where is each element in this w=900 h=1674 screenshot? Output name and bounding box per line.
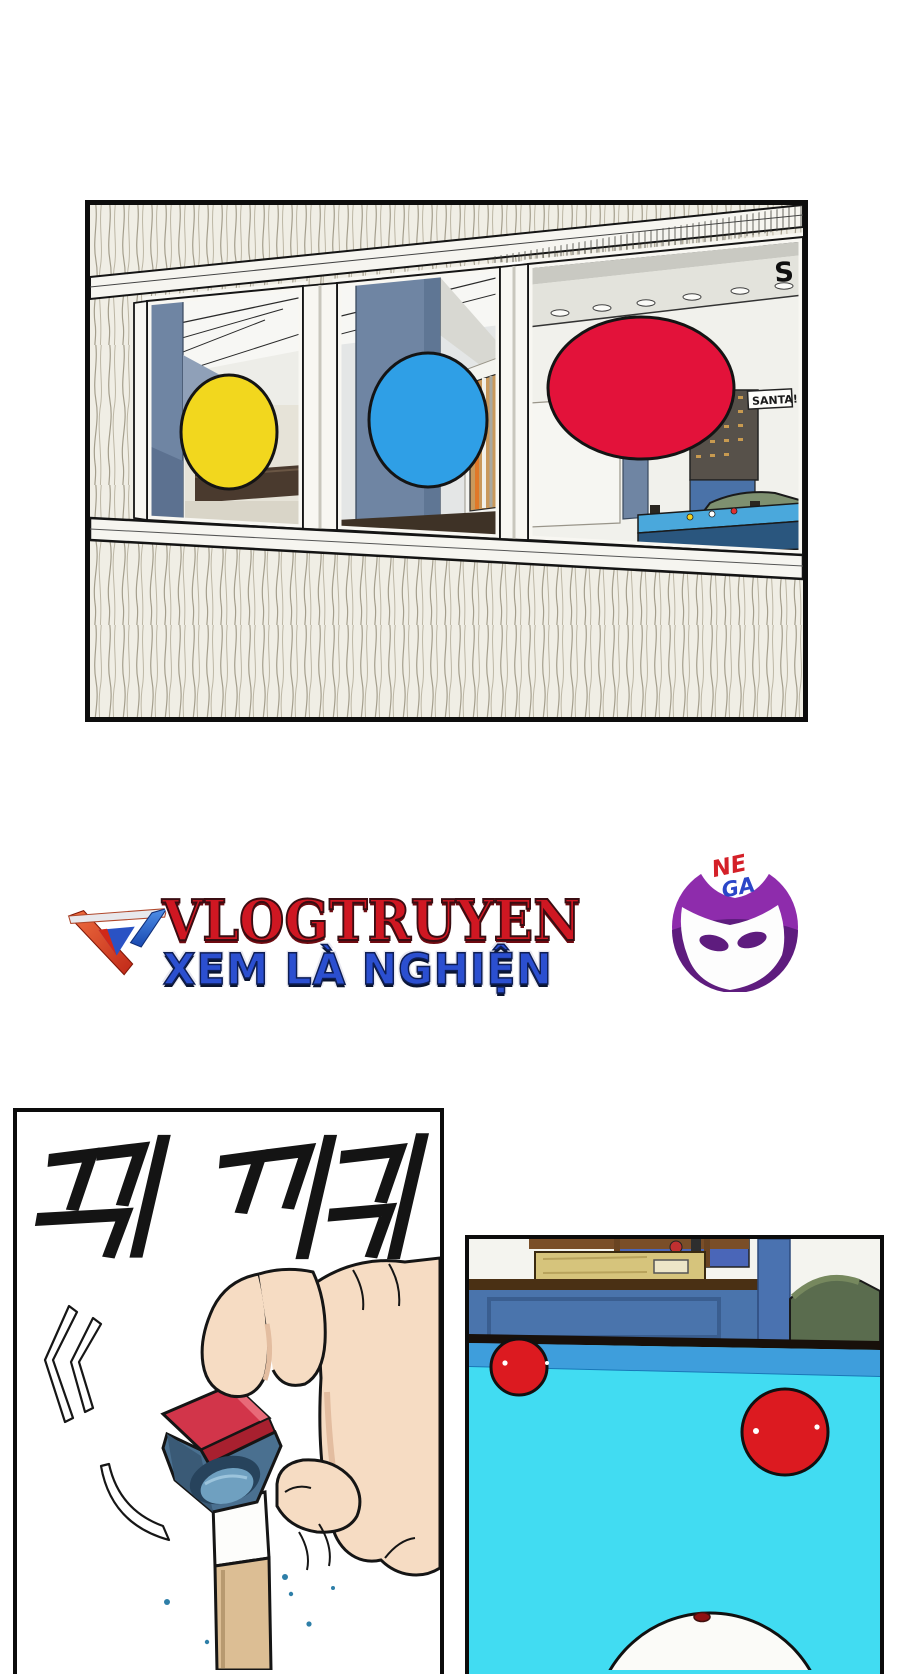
brand-wordmark: VLOGTRUYEN — [162, 892, 581, 951]
nega-mascot-logo: NE GA — [648, 792, 808, 992]
pool-table-panel — [465, 1235, 884, 1674]
vlogtruyen-logo-icon — [58, 900, 170, 980]
billiards-window-panel: S SANTA! — [85, 200, 808, 722]
billiards-window-art: S SANTA! — [90, 205, 803, 717]
glass-sign-letter: S — [773, 257, 795, 289]
chalking-hand-art — [17, 1112, 440, 1670]
yellow-ball-decal — [181, 375, 277, 489]
red-ball-decal — [548, 317, 734, 459]
motion-lines — [45, 1306, 169, 1540]
chalk-panel: 끽 끼긱 — [13, 1108, 444, 1674]
comic-page: { "page": {"width": 900, "height": 1670,… — [0, 0, 900, 1670]
santa-sign: SANTA! — [748, 389, 799, 410]
red-ball-small — [491, 1339, 549, 1395]
pool-table-art — [469, 1239, 880, 1670]
blue-ball-decal — [369, 353, 487, 487]
svg-text:SANTA!: SANTA! — [752, 393, 798, 408]
cue-case — [535, 1252, 705, 1282]
room-background — [469, 1239, 880, 1345]
red-ball-large — [742, 1389, 828, 1475]
pool-cue — [213, 1492, 271, 1670]
brand-tagline: XEM LÀ NGHIỆN — [163, 948, 553, 993]
index-finger — [202, 1274, 268, 1397]
sofa-cushion — [790, 1277, 880, 1345]
